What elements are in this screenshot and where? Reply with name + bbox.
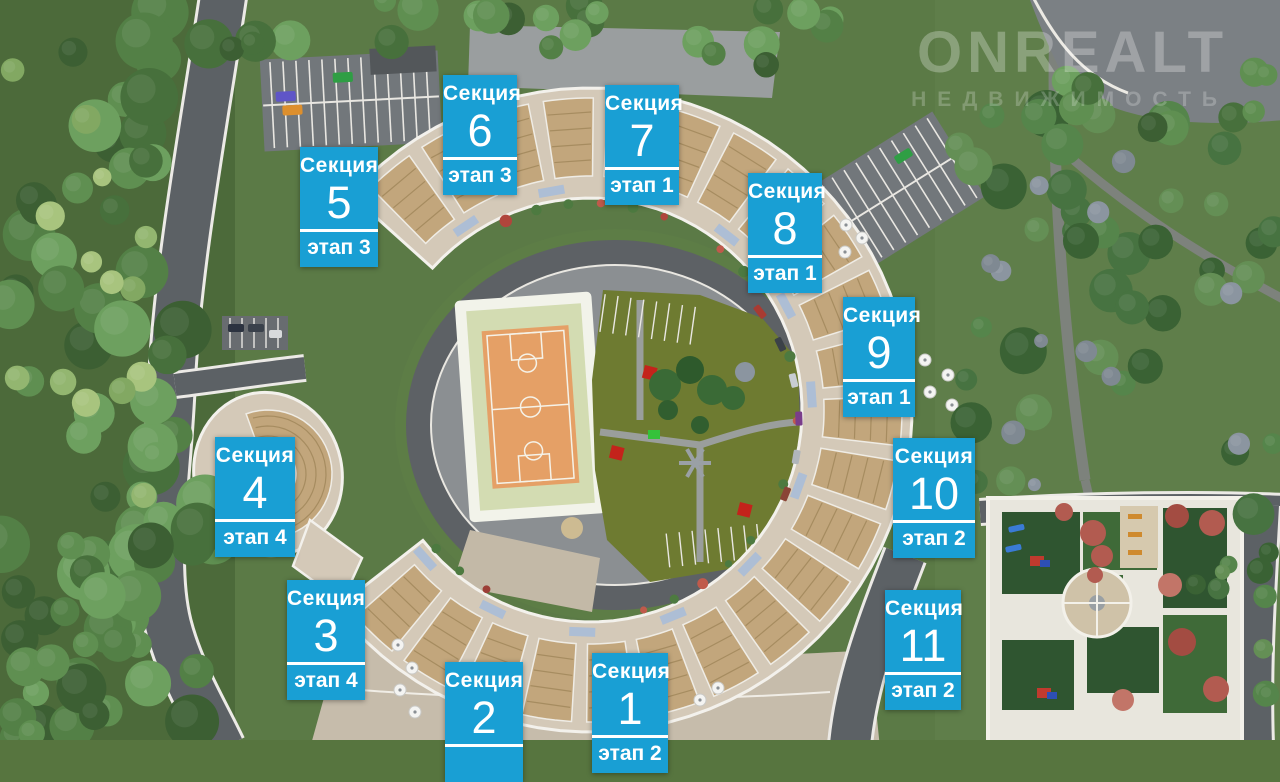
section-word: Секция — [748, 173, 822, 204]
section-number: 9 — [843, 328, 915, 379]
section-stage: этап 2 — [592, 735, 668, 773]
section-word: Секция — [843, 297, 915, 328]
section-number: 5 — [300, 178, 378, 229]
section-word: Секция — [605, 85, 679, 116]
section-label-6[interactable]: Секция 6 этап 3 — [443, 75, 517, 195]
section-label-2[interactable]: Секция 2 — [445, 662, 523, 782]
section-label-5[interactable]: Секция 5 этап 3 — [300, 147, 378, 267]
section-number: 10 — [893, 469, 975, 520]
section-number: 2 — [445, 693, 523, 744]
basketball-court — [454, 291, 606, 522]
section-stage: этап 2 — [885, 672, 961, 710]
section-label-1[interactable]: Секция 1 этап 2 — [592, 653, 668, 773]
section-word: Секция — [287, 580, 365, 611]
parking-west-small — [222, 316, 288, 350]
section-word: Секция — [885, 590, 961, 621]
section-word: Секция — [592, 653, 668, 684]
section-label-3[interactable]: Секция 3 этап 4 — [287, 580, 365, 700]
section-stage: этап 1 — [605, 167, 679, 205]
section-label-4[interactable]: Секция 4 этап 4 — [215, 437, 295, 557]
section-stage: этап 3 — [300, 229, 378, 267]
section-word: Секция — [445, 662, 523, 693]
section-number: 6 — [443, 106, 517, 157]
section-stage: этап 1 — [843, 379, 915, 417]
section-stage: этап 4 — [287, 662, 365, 700]
section-number: 8 — [748, 204, 822, 255]
section-label-9[interactable]: Секция 9 этап 1 — [843, 297, 915, 417]
section-word: Секция — [893, 438, 975, 469]
section-label-10[interactable]: Секция 10 этап 2 — [893, 438, 975, 558]
section-stage: этап 3 — [443, 157, 517, 195]
section-number: 1 — [592, 684, 668, 735]
section-stage: этап 1 — [748, 255, 822, 293]
section-word: Секция — [443, 75, 517, 106]
site-plan: Секция 5 этап 3 Секция 6 этап 3 Секция 7… — [0, 0, 1280, 740]
section-number: 11 — [885, 621, 961, 672]
section-stage: этап 4 — [215, 519, 295, 557]
parking-top-left — [260, 45, 443, 151]
section-number: 4 — [215, 468, 295, 519]
section-word: Секция — [215, 437, 295, 468]
section-stage: этап 2 — [893, 520, 975, 558]
section-label-11[interactable]: Секция 11 этап 2 — [885, 590, 961, 710]
section-number: 7 — [605, 116, 679, 167]
section-number: 3 — [287, 611, 365, 662]
section-stage — [445, 744, 523, 782]
section-label-8[interactable]: Секция 8 этап 1 — [748, 173, 822, 293]
section-word: Секция — [300, 147, 378, 178]
section-label-7[interactable]: Секция 7 этап 1 — [605, 85, 679, 205]
